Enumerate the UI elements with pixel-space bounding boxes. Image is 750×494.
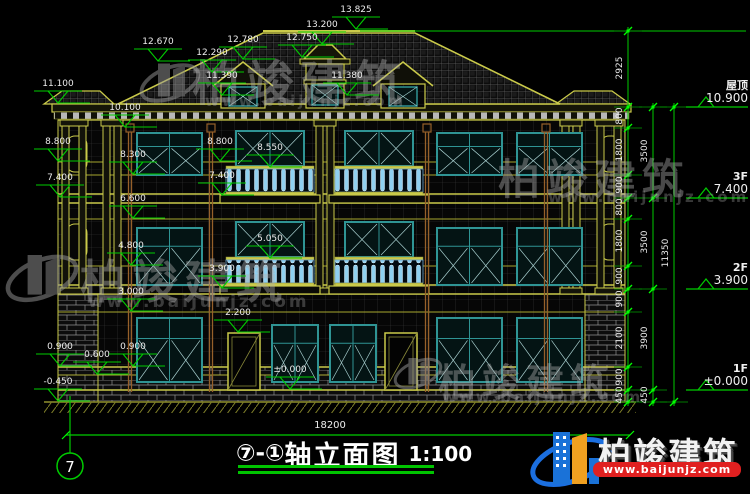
elevation-value: 11.100 (32, 79, 84, 89)
elevation-mark: 12.750 (276, 34, 340, 60)
title-underline-2 (238, 471, 434, 474)
elevation-mark: 5.050 (244, 235, 308, 261)
title-scale: 1:100 (409, 442, 473, 466)
level-marker: 2F3.900 (664, 262, 748, 287)
dim-chain1-value: 1800 (615, 224, 625, 258)
elevation-mark: -0.450 (32, 378, 96, 404)
dim-chain1-value: 2925 (615, 51, 625, 85)
dim-chain2-value: 3500 (640, 225, 650, 259)
axis-bubble-label: 7 (57, 458, 83, 476)
logo-blue-building (553, 432, 570, 484)
logo-orange-building (572, 433, 587, 484)
title-underline-1 (238, 465, 434, 468)
elevation-mark: 7.400 (34, 174, 98, 200)
cad-elevation-drawing: 柏竣建筑 www.baijunjz.com 柏竣建筑 www.baijunjz.… (0, 0, 750, 494)
footer-url: www.baijunjz.com (593, 462, 741, 477)
level-value: 7.400 (664, 183, 748, 196)
elevation-value: 5.050 (244, 234, 296, 244)
level-value: 3.900 (664, 274, 748, 287)
level-marker: 1F±0.000 (664, 363, 748, 388)
elevation-value: 12.780 (217, 35, 269, 45)
level-value: ±0.000 (664, 375, 748, 388)
elevation-mark: 6.600 (107, 195, 171, 221)
dim-chain2-value: 3500 (640, 134, 650, 168)
elevation-value: -0.450 (32, 377, 84, 387)
dim-chain1-value: 2100 (615, 321, 625, 355)
level-marker: 屋顶10.900 (664, 80, 748, 105)
elevation-value: 12.750 (276, 33, 328, 43)
elevation-value: 11.390 (196, 71, 248, 81)
elevation-value: 13.200 (296, 20, 348, 30)
elevation-mark: 2.200 (212, 309, 276, 335)
elevation-value: 11.380 (321, 71, 373, 81)
elevation-mark: 7.400 (196, 172, 260, 198)
dim-chain2-value: 3900 (640, 321, 650, 355)
elevation-value: 3.900 (196, 264, 248, 274)
elevation-value: 4.800 (105, 241, 157, 251)
elevation-value: 12.290 (186, 48, 238, 58)
dim-chain1-value: 900 (615, 282, 625, 316)
dim-chain1-value: 800 (615, 190, 625, 224)
elevation-value: 12.670 (132, 37, 184, 47)
elevation-mark: 0.900 (107, 343, 171, 369)
elevation-mark: 4.800 (105, 242, 169, 268)
elevation-value: 3.000 (105, 287, 157, 297)
elevation-value: 10.100 (99, 103, 151, 113)
elevation-value: 7.400 (34, 173, 86, 183)
elevation-value: 0.900 (107, 342, 159, 352)
dim-chain1-value: 450 (615, 378, 625, 412)
elevation-mark: 8.800 (32, 138, 96, 164)
elevation-mark: 11.380 (321, 72, 385, 98)
elevation-mark: 8.300 (107, 151, 171, 177)
elevation-value: 8.550 (244, 143, 296, 153)
elevation-value: 8.300 (107, 150, 159, 160)
elevation-value: 2.200 (212, 308, 264, 318)
elevation-mark: 10.100 (99, 104, 163, 130)
elevation-mark: 3.000 (105, 288, 169, 314)
dim-chain1-value: 800 (615, 99, 625, 133)
elevation-mark: 11.390 (196, 72, 260, 98)
elevation-mark: 11.100 (32, 80, 96, 106)
dim-chain2-value: 450 (640, 378, 650, 412)
elevation-value: ±0.000 (264, 365, 316, 375)
title-axis-range: ⑦-① (236, 441, 285, 467)
level-value: 10.900 (664, 92, 748, 105)
level-marker: 3F7.400 (664, 171, 748, 196)
dim-chain1-value: 1800 (615, 133, 625, 167)
annotation-layer: 13.82512.67012.78012.29011.39013.20012.7… (0, 0, 750, 494)
elevation-value: 6.600 (107, 194, 159, 204)
elevation-mark: 3.900 (196, 265, 260, 291)
elevation-mark: ±0.000 (264, 366, 328, 392)
elevation-mark: 8.550 (244, 144, 308, 170)
elevation-value: 7.400 (196, 171, 248, 181)
elevation-value: 8.800 (32, 137, 84, 147)
overall-width-dimension: 18200 (300, 420, 360, 431)
elevation-value: 13.825 (330, 5, 382, 15)
elevation-value: 8.800 (194, 137, 246, 147)
